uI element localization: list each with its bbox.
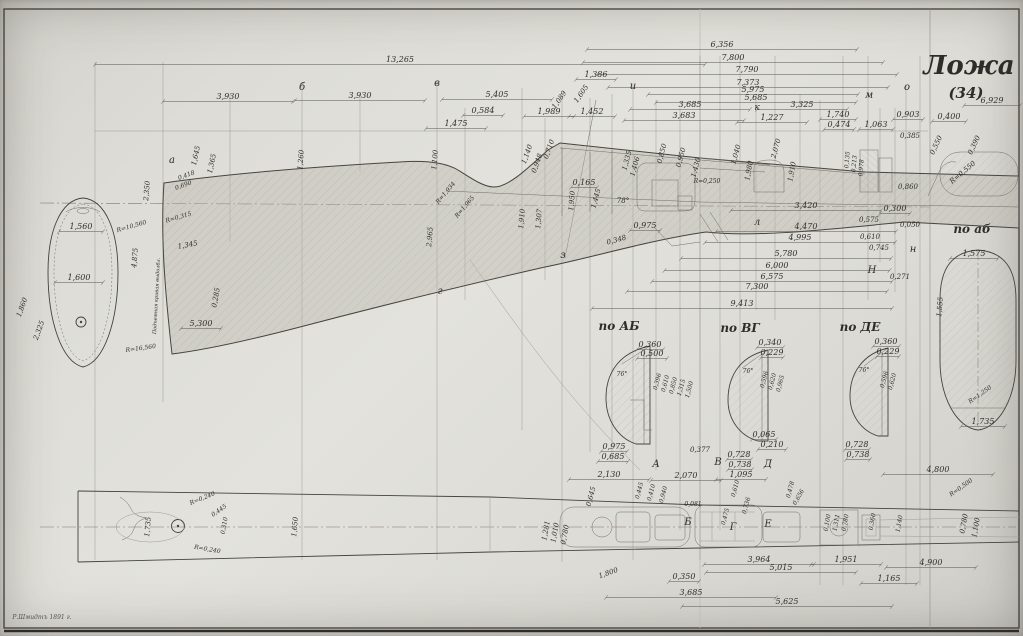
dimension-label: 1,452 [581, 107, 604, 116]
dimension-label: 0,903 [897, 110, 920, 119]
dimension-label: 0,445 [210, 503, 228, 519]
dimension-label: 0,940 [658, 485, 669, 504]
dimension-label: Д [763, 459, 773, 470]
dimension-label: 3,685 [680, 588, 703, 597]
dimension-label: 5,300 [190, 319, 213, 328]
dimension-label: 5,685 [745, 93, 768, 102]
dimension-label: 4,875 [130, 247, 140, 269]
dimension-label: 0,780 [559, 524, 570, 546]
dimension-label: 1,951 [835, 555, 858, 564]
dimension-label: 0,975 [634, 221, 657, 230]
dimension-label: и [630, 81, 636, 92]
dimension-label: 3,325 [791, 100, 814, 109]
dimension-label: 5,625 [776, 597, 799, 606]
dimension-label: 0,745 [869, 244, 890, 252]
drawing-title: (34) [948, 84, 983, 102]
dimension-label: 1,260 [296, 149, 306, 170]
dimension-label: 78° [617, 197, 629, 205]
dimension-label: 0,350 [673, 572, 696, 581]
buttplate-screw-top [77, 209, 89, 214]
dimension-label: Г [729, 522, 737, 533]
dimension-label: к [754, 103, 760, 113]
section-label: по ДЕ [840, 320, 882, 334]
dimension-label: 0,165 [573, 178, 596, 187]
dimension-label: 1,740 [827, 110, 850, 119]
dimension-label: 5,405 [486, 90, 509, 99]
dimension-label: 6,575 [761, 272, 784, 281]
drawing-title: Ложа [921, 51, 1014, 81]
blueprint-sheet: 13,2653,9303,9305,4056,3567,8007,7907,37… [0, 0, 1023, 636]
section-label: по ВГ [720, 321, 760, 335]
dimension-label: Подъемная кривая выдолбл. [151, 257, 162, 335]
dimension-label: 0,584 [472, 106, 495, 115]
cross-section-ab-butt [940, 250, 1016, 430]
dimension-label: 1,095 [730, 470, 753, 479]
dimension-label: 7,800 [722, 53, 745, 62]
dimension-label: 0,645 [585, 485, 598, 507]
dimension-label: 1,140 [895, 514, 905, 532]
dimension-label: в [434, 78, 440, 89]
dimension-label: 4,800 [926, 465, 950, 474]
dimension-label: 3,930 [217, 92, 240, 101]
dimension-label: 0,474 [828, 120, 851, 129]
dimension-label: 9,413 [731, 299, 754, 308]
dimension-label: 7,300 [746, 282, 769, 291]
dimension-label: 1,063 [865, 120, 888, 129]
section-label: по АБ [599, 319, 640, 333]
dimension-label: Н [867, 265, 877, 276]
dimension-label: 0,271 [890, 273, 910, 281]
dimension-label: 0,575 [859, 216, 880, 224]
dimension-label: 0,065 [753, 430, 776, 439]
dimension-label: 1,860 [15, 296, 30, 318]
dimension-label: 4,900 [919, 558, 943, 567]
dimension-label: 2,325 [32, 319, 47, 342]
dimension-label: 0,860 [898, 183, 919, 191]
dimension-label: 0,550 [928, 134, 944, 156]
dimension-label: 3,683 [673, 111, 696, 120]
cross-section-DE [850, 348, 888, 436]
dimension-label: 6,000 [766, 261, 789, 270]
dimension-label: б [299, 82, 306, 93]
dimension-label: 0,610 [730, 479, 741, 498]
dimension-label: 3,930 [349, 91, 372, 100]
dimension-label: 3,420 [795, 201, 818, 210]
dimension-label: 76° [743, 368, 754, 375]
dimension-label: 0,377 [690, 446, 711, 454]
dimension-label: 0,445 [634, 481, 645, 500]
dimension-label: г [437, 286, 442, 297]
dimension-label: 0,081 [684, 501, 701, 508]
dimension-label: м [865, 90, 873, 101]
dimension-label: 1,800 [598, 566, 620, 581]
stock-side-view [163, 143, 1019, 354]
dimension-label: В [713, 457, 721, 468]
dimension-label: 0,385 [900, 132, 921, 140]
dimension-label: 1,735 [972, 417, 995, 426]
dimension-label: о [904, 82, 910, 93]
dimension-label: 2,070 [674, 471, 698, 480]
dimension-label: Е [763, 519, 772, 530]
dimension-label: Б [683, 517, 692, 528]
dimension-label: 0,050 [900, 221, 921, 229]
scan-scratch [470, 260, 640, 470]
dimension-label: 0,738 [847, 450, 870, 459]
dimension-label: 0,728 [728, 450, 751, 459]
dimension-label: 0,310 [220, 516, 230, 534]
dimension-label: 6,929 [981, 96, 1004, 105]
dimension-label: 2,130 [597, 470, 621, 479]
section-label: по аб [953, 222, 991, 236]
dimension-label: 0,975 [603, 442, 626, 451]
dimension-label: 5,780 [775, 249, 798, 258]
dimension-label: 1,227 [761, 113, 785, 122]
dimension-label: 1,560 [70, 222, 93, 231]
dimension-label: R=10,560 [115, 219, 147, 234]
dimension-label: 4,995 [788, 233, 812, 242]
dimension-label: 1,100 [970, 517, 981, 539]
dimension-label: 0,500 [641, 349, 664, 358]
dimension-label: 4,470 [794, 222, 818, 231]
dimension-label: 0,738 [729, 460, 752, 469]
dimension-label: R=0,250 [693, 178, 721, 185]
dimension-label: 1,645 [190, 144, 202, 166]
dimension-label: 6,356 [711, 40, 734, 49]
dimension-label: а [169, 155, 175, 166]
dimension-label: 0,780 [958, 513, 969, 535]
dimension-label: R=0,500 [947, 477, 974, 499]
dimension-label: 1,165 [878, 574, 901, 583]
dimension-label: 0,300 [884, 204, 907, 213]
dimension-label: 5,015 [770, 563, 793, 572]
forend-slot-detail [940, 152, 1018, 196]
dimension-label: 2,070 [769, 137, 782, 160]
dimension-label: 0,728 [846, 440, 869, 449]
dimension-label: 0,229 [877, 347, 900, 356]
dimension-label: 3,685 [679, 100, 702, 109]
dimension-label: 1,735 [143, 516, 153, 537]
dimension-label: 0,229 [761, 348, 784, 357]
dimension-label: 1,650 [290, 516, 300, 537]
dimension-label: 0,780 [841, 513, 851, 531]
dimension-label: 1,365 [206, 152, 218, 174]
dimension-label: 1,386 [585, 70, 608, 79]
dimension-label: н [910, 244, 917, 255]
cross-section-AB [606, 346, 652, 444]
dimension-label: 0,210 [761, 440, 784, 449]
dimension-label: з [560, 250, 565, 261]
dimension-label: 0,685 [602, 452, 625, 461]
dimension-label: 1,605 [572, 83, 590, 104]
signature: Р.Шмидтъ 1891 г. [11, 614, 71, 621]
dimension-label: 0,360 [639, 340, 662, 349]
dimension-label: 76° [617, 371, 628, 378]
dimension-label: 1,475 [445, 119, 468, 128]
stock-drawing: 13,2653,9303,9305,4056,3567,8007,7907,37… [0, 0, 1023, 636]
dimension-label: А [651, 459, 660, 470]
dimension-label: 1,575 [963, 249, 986, 258]
dimension-label: 0,400 [938, 112, 961, 121]
butt-plan-neck [120, 497, 146, 540]
dimension-label: 2,350 [142, 180, 152, 202]
dimension-labels: 13,2653,9303,9305,4056,3567,8007,7907,37… [11, 40, 1014, 621]
dimension-label: 3,964 [748, 555, 771, 564]
dimension-label: 0,340 [759, 338, 782, 347]
dimension-label: R=0,240 [193, 544, 222, 556]
cross-section-VG [728, 350, 768, 441]
dimension-label: 0,610 [860, 233, 881, 241]
dimension-label: 76° [859, 367, 870, 374]
dimension-label: 0,410 [646, 483, 657, 502]
dimension-label: 13,265 [386, 55, 414, 64]
dimension-label: л [754, 217, 760, 228]
dimension-label: 0,360 [875, 337, 898, 346]
dimension-label: R=16,560 [124, 343, 156, 354]
dimension-label: 7,790 [736, 65, 759, 74]
dimension-label: 1,600 [68, 273, 91, 282]
